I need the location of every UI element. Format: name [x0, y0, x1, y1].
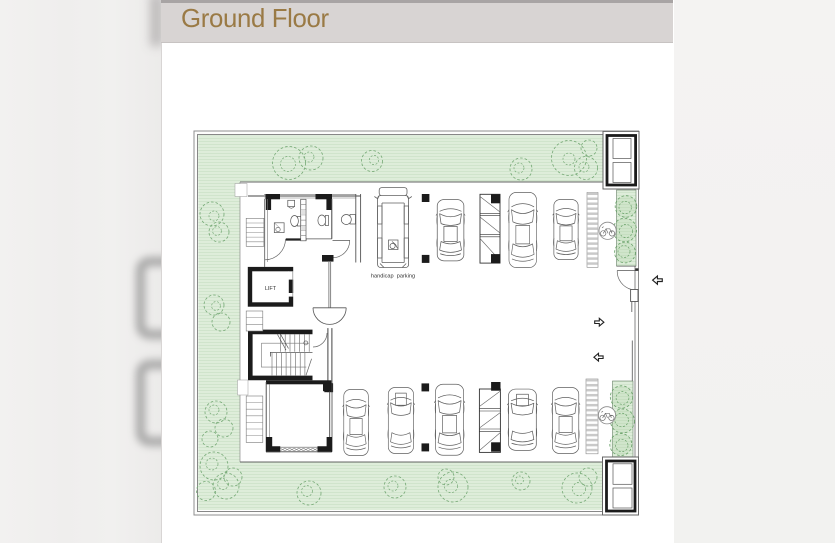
svg-text:handicap parking: handicap parking [371, 273, 415, 279]
svg-text:LIFT: LIFT [265, 286, 277, 292]
